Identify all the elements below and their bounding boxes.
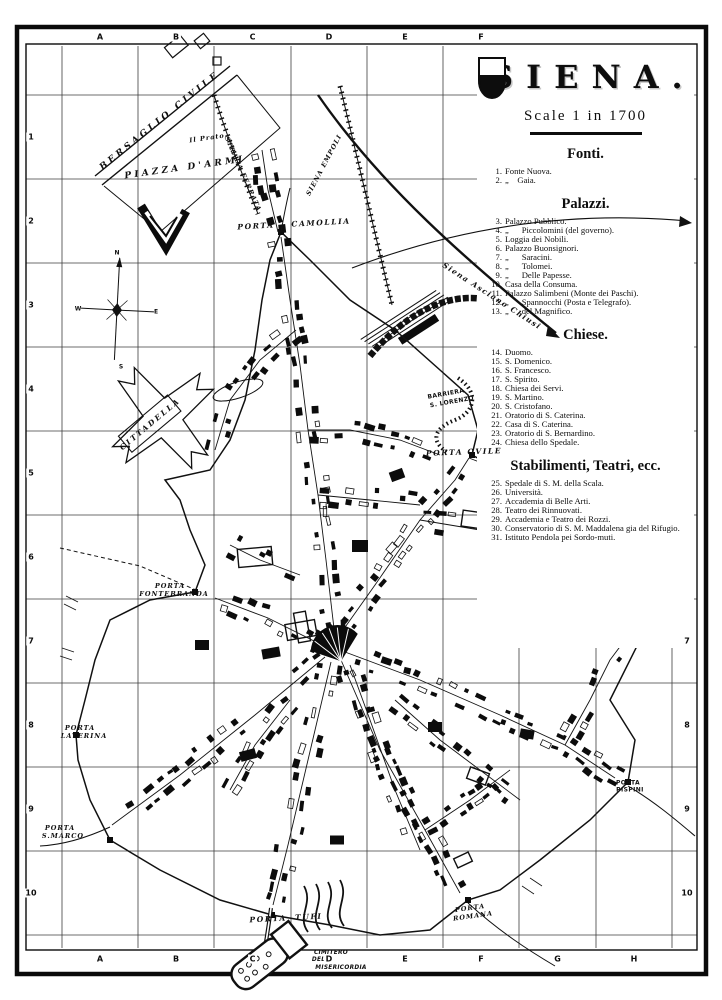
legend-item: 2.„ Gaia. (487, 176, 694, 185)
bersaglio-band (95, 33, 280, 247)
map-sheet: BERSAGLIO CIVILEPIAZZA D'ARMIIl PratoSTR… (0, 0, 722, 1000)
legend: SIENA. Scale 1 in 1700 Fonti.1.Fonte Nuo… (477, 46, 694, 542)
legend-section-heading: Fonti. (477, 146, 694, 163)
map-title: SIENA. (477, 58, 694, 96)
compass-rose-icon (78, 255, 156, 362)
legend-item: 31.Istituto Pendola pei Sordo-muti. (487, 533, 694, 542)
map-scale-label: Scale 1 in 1700 (477, 108, 694, 125)
legend-item: 13.„ del Magnifico. (487, 307, 694, 316)
legend-section-heading: Palazzi. (477, 196, 694, 213)
scale-rule (530, 132, 642, 135)
legend-lists: Fonti.1.Fonte Nuova.2.„ Gaia.Palazzi.3.P… (477, 146, 694, 542)
legend-section-heading: Stabilimenti, Teatri, ecc. (477, 458, 694, 475)
cittadella-fort (113, 368, 214, 469)
legend-section-heading: Chiese. (477, 327, 694, 344)
legend-item: 24.Chiesa dello Spedale. (487, 438, 694, 447)
cittadella-inner (118, 395, 181, 452)
siena-balzana-shield-icon (477, 56, 507, 100)
